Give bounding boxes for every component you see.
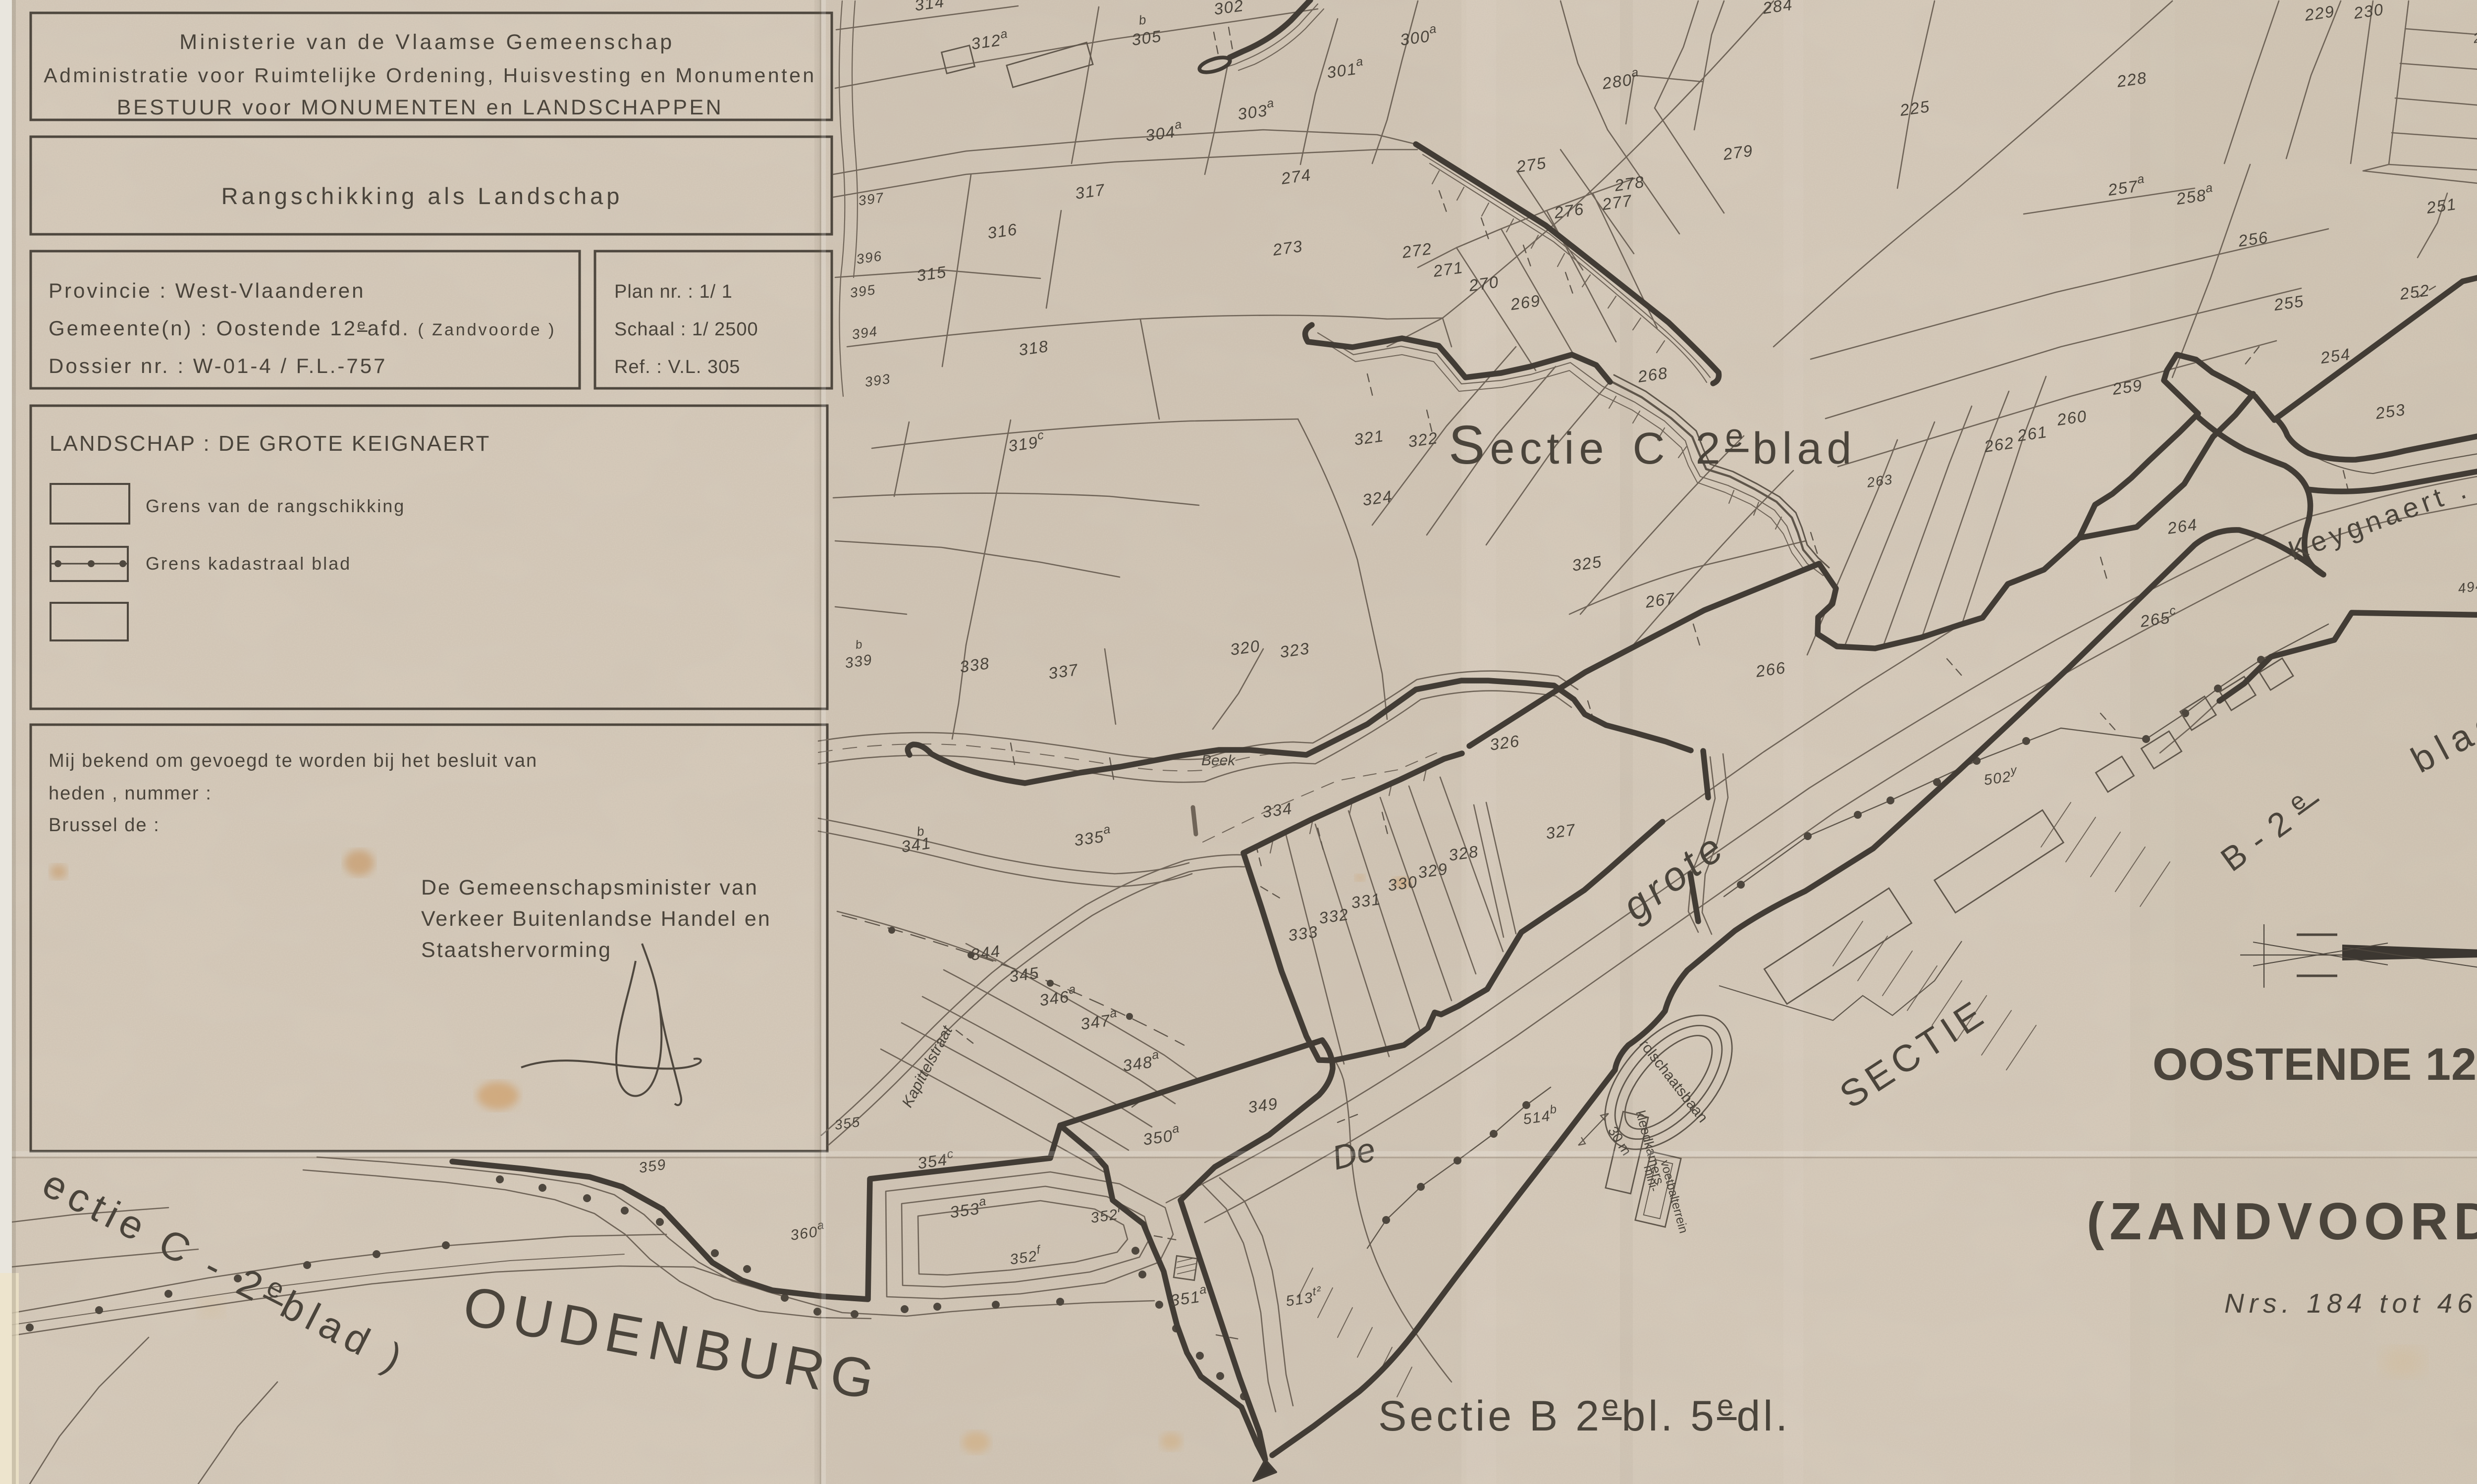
svg-text:SectieC2eblad: SectieC2eblad [1449,415,1856,476]
svg-text:Staatshervorming: Staatshervorming [421,938,612,962]
svg-text:Provincie : West-Vlaanderen: Provincie : West-Vlaanderen [49,279,365,302]
svg-text:De Gemeenschapsminister van: De Gemeenschapsminister van [421,876,758,900]
svg-text:Brussel de :: Brussel de : [49,815,160,836]
svg-text:Nrs. 184 tot 461.: Nrs. 184 tot 461. [2224,1288,2477,1319]
svg-text:Schaal : 1/ 2500: Schaal : 1/ 2500 [614,319,758,340]
svg-text:Dossier nr. : W-01-4 / F.L.-75: Dossier nr. : W-01-4 / F.L.-757 [49,354,387,377]
svg-text:Grens kadastraal blad: Grens kadastraal blad [146,553,351,574]
svg-text:OOSTENDE 12e Afd.: OOSTENDE 12e Afd. [2153,1037,2477,1090]
svg-text:Administratie voor Ruimtelijke: Administratie voor Ruimtelijke Ordening,… [44,64,816,87]
svg-text:Beek: Beek [1201,752,1236,769]
svg-text:Rangschikking als Landschap: Rangschikking als Landschap [221,183,623,209]
svg-text:Verkeer Buitenlandse Handel en: Verkeer Buitenlandse Handel en [421,907,771,931]
svg-text:Gemeente(n) : Oostende 12eafd.: Gemeente(n) : Oostende 12eafd. ( Zandvoo… [49,317,556,340]
svg-text:Mij bekend om gevoegd te worde: Mij bekend om gevoegd te worden bij het … [49,750,538,771]
svg-text:LANDSCHAP : DE GROTE KEIGNAERT: LANDSCHAP : DE GROTE KEIGNAERT [50,431,490,456]
svg-text:Grens van de rangschikking: Grens van de rangschikking [146,496,405,516]
svg-text:Ministerie van de Vlaamse Geme: Ministerie van de Vlaamse Gemeenschap [179,30,674,54]
svg-text:Plan nr. : 1/ 1: Plan nr. : 1/ 1 [614,281,733,302]
svg-text:(ZANDVOORDE G ): (ZANDVOORDE G ) [2087,1192,2477,1251]
svg-text:BESTUUR voor MONUMENTEN en LAN: BESTUUR voor MONUMENTEN en LANDSCHAPPEN [117,96,723,119]
svg-text:Ref. : V.L. 305: Ref. : V.L. 305 [614,357,740,377]
svg-text:494: 494 [2457,578,2477,596]
svg-text:heden , nummer :: heden , nummer : [49,783,212,804]
